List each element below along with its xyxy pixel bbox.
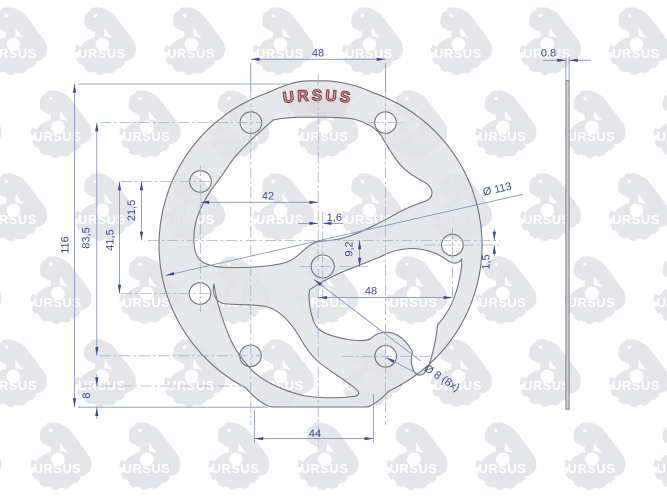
svg-text:83,5: 83,5	[81, 227, 93, 248]
svg-text:42: 42	[262, 190, 274, 202]
svg-text:8: 8	[81, 392, 93, 398]
svg-text:1,5: 1,5	[481, 254, 493, 269]
svg-text:48: 48	[365, 286, 377, 298]
svg-text:0.8: 0.8	[541, 48, 556, 60]
svg-text:48: 48	[312, 48, 324, 60]
svg-text:116: 116	[60, 236, 72, 254]
svg-text:1,6: 1,6	[327, 212, 342, 224]
svg-text:44: 44	[309, 428, 321, 440]
svg-text:9,2: 9,2	[344, 241, 356, 256]
svg-text:41,5: 41,5	[105, 229, 117, 250]
svg-text:21,5: 21,5	[126, 200, 138, 221]
